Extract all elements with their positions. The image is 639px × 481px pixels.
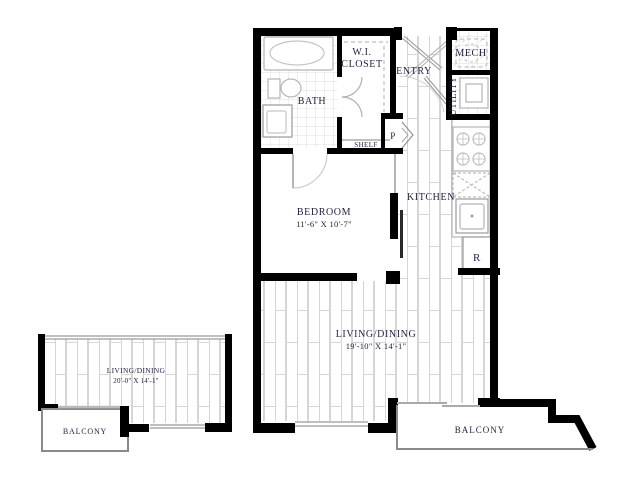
room-label-mech: MECH xyxy=(455,48,486,59)
closet-door-arc-top xyxy=(342,77,362,97)
alt-wall-balcony-right xyxy=(120,406,129,437)
alt-window xyxy=(150,425,206,428)
alt-room-label-living: LIVING/DINING xyxy=(107,366,166,375)
wall-bedroom-bottom xyxy=(253,273,357,281)
room-dims-bedroom: 11'-6" X 10'-7" xyxy=(296,219,352,229)
room-label-bedroom: BEDROOM xyxy=(297,207,351,218)
wall-bedroom-right xyxy=(390,193,398,239)
room-label-closet: CLOSET xyxy=(341,59,382,70)
wall-bedroom-top-left xyxy=(253,148,293,154)
column-bedroom xyxy=(386,271,400,284)
wall-fridge-bottom xyxy=(458,268,500,275)
alt-top-wall xyxy=(45,336,225,339)
balcony-sliding-door xyxy=(397,403,480,406)
wall-over-pantry xyxy=(381,113,403,119)
toilet-bowl xyxy=(281,79,301,97)
wall-kitchen-edge xyxy=(400,210,403,258)
living-floor-left xyxy=(261,281,398,421)
room-label-pantry: P xyxy=(390,131,396,141)
floor-plan-page: BATH W.I. CLOSET ENTRY MECH UTILITY P SH… xyxy=(0,0,639,481)
alt-wall-right xyxy=(225,334,232,424)
wall-mech-top xyxy=(448,28,494,31)
room-dims-living: 19'-10" X 14'-1" xyxy=(346,341,407,351)
closet-door-arc-bottom xyxy=(342,97,362,117)
room-label-living: LIVING/DINING xyxy=(336,329,417,340)
room-label-entry: ENTRY xyxy=(396,66,432,77)
wall-bath-closet-upper xyxy=(337,36,342,77)
alt-wall-bottom-stub-1 xyxy=(129,424,149,432)
wall-bottom-left-stub xyxy=(253,423,295,433)
stove xyxy=(453,127,490,171)
alt-room-label-balcony: BALCONY xyxy=(63,427,107,436)
room-label-refrigerator: R xyxy=(473,252,481,264)
room-label-bath: BATH xyxy=(298,96,327,107)
wall-top-left xyxy=(253,28,400,36)
wall-closet-right xyxy=(390,36,396,119)
alt-wall-bottom-stub-2 xyxy=(205,423,232,432)
room-label-kitchen: KITCHEN xyxy=(407,192,455,203)
sink-drain xyxy=(471,215,474,218)
room-label-utility: UTILITY xyxy=(448,76,458,116)
floor-plan-canvas: BATH W.I. CLOSET ENTRY MECH UTILITY P SH… xyxy=(0,0,639,481)
alt-room-dims-living: 20'-0" X 14'-1" xyxy=(113,377,158,385)
bath-sink xyxy=(267,111,286,133)
living-floor-right xyxy=(398,279,490,403)
wall-right xyxy=(490,28,498,405)
bedroom-door-arc xyxy=(293,154,327,188)
wall-mech-utility-divider xyxy=(446,70,494,75)
room-label-wi: W.I. xyxy=(352,47,371,58)
wall-left xyxy=(253,28,261,433)
living-window xyxy=(295,422,368,426)
room-label-balcony: BALCONY xyxy=(455,425,506,435)
room-label-shelf: SHELF xyxy=(354,141,377,149)
washer-drum xyxy=(466,84,482,102)
alt-wall-left xyxy=(38,334,45,410)
bathtub-basin xyxy=(270,41,324,65)
wall-mech-left xyxy=(446,28,452,75)
toilet-tank xyxy=(268,79,280,98)
